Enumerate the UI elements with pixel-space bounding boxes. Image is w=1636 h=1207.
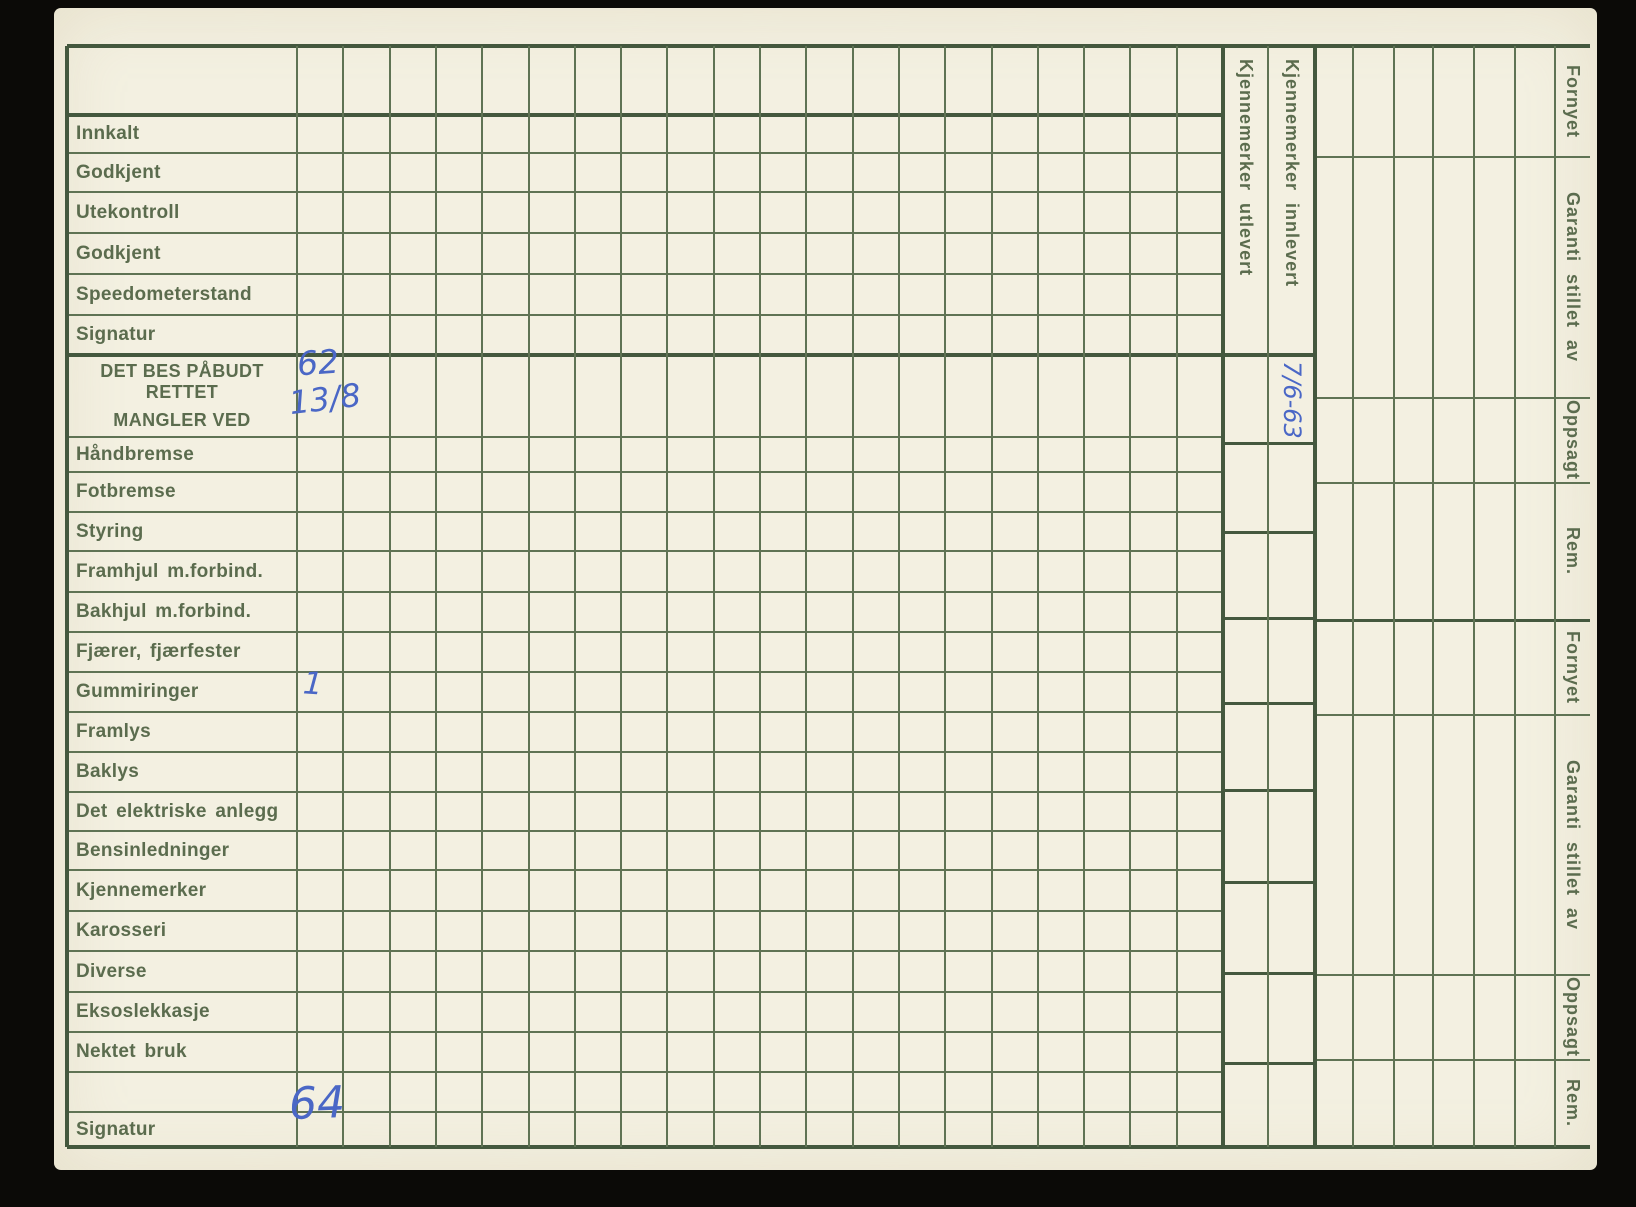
row-label: Bensinledninger — [76, 840, 229, 862]
row-label: Fjærer, fjærfester — [76, 641, 241, 663]
status-label: Rem. — [1557, 1060, 1588, 1147]
grid-line-h — [67, 631, 1223, 633]
grid-line-h — [67, 152, 1223, 154]
grid-line-h — [1223, 789, 1315, 792]
grid-line-v — [666, 46, 668, 1147]
grid-line-v — [898, 46, 900, 1147]
handwritten-entry: 64 — [288, 1081, 346, 1127]
row-label: Framhjul m.forbind. — [76, 561, 263, 583]
grid-line-v — [296, 46, 298, 1147]
grid-line-h — [67, 1031, 1223, 1033]
status-label: Oppsagt — [1557, 975, 1588, 1060]
handwritten-entry: 62 — [296, 345, 340, 381]
grid-line-v — [389, 46, 391, 1147]
grid-line-h — [1223, 702, 1315, 705]
status-label: Garanti stillet av — [1557, 715, 1588, 975]
status-label: Fornyet — [1557, 46, 1588, 157]
grid-line-v — [713, 46, 715, 1147]
grid-line-h — [67, 830, 1223, 832]
grid-line-v — [991, 46, 993, 1147]
grid-line-h — [67, 113, 1223, 117]
grid-line-h — [67, 591, 1223, 593]
grid-line-h — [1223, 1062, 1315, 1065]
handwritten-entry: 1 — [302, 668, 324, 700]
grid-line-v — [65, 46, 69, 1147]
grid-line-v — [1432, 46, 1434, 1147]
row-label: Signatur — [76, 324, 155, 346]
grid-line-v — [1176, 46, 1178, 1147]
grid-line-v — [1473, 46, 1475, 1147]
grid-line-h — [1223, 972, 1315, 975]
row-label: Framlys — [76, 721, 151, 743]
plate-column-header-innlevert: Kjennemerker innlevert — [1269, 46, 1315, 367]
grid-line-v — [342, 46, 344, 1147]
plate-column-header-utlevert: Kjennemerker utlevert — [1224, 46, 1268, 367]
grid-line-v — [620, 46, 622, 1147]
row-label: Eksoslekkasje — [76, 1001, 210, 1023]
grid-line-v — [1393, 46, 1395, 1147]
row-label: Håndbremse — [76, 444, 194, 466]
grid-line-h — [1315, 397, 1590, 399]
grid-line-h — [1223, 531, 1315, 534]
defect-section-header-line1: DET BES PÅBUDT RETTET — [67, 361, 297, 403]
grid-line-v — [528, 46, 530, 1147]
grid-line-h — [67, 191, 1223, 193]
grid-line-h — [67, 671, 1223, 673]
grid-line-h — [67, 273, 1223, 275]
grid-line-v — [1514, 46, 1516, 1147]
row-label: Godkjent — [76, 243, 161, 265]
row-label: Styring — [76, 521, 144, 543]
row-label: Nektet bruk — [76, 1041, 187, 1063]
row-label: Diverse — [76, 961, 147, 983]
grid-line-h — [1315, 974, 1590, 976]
grid-line-h — [67, 353, 1315, 357]
inspection-card — [54, 8, 1597, 1170]
grid-line-h — [67, 950, 1223, 952]
grid-line-h — [67, 314, 1223, 316]
grid-line-v — [574, 46, 576, 1147]
row-label: Karosseri — [76, 920, 166, 942]
grid-line-h — [67, 232, 1223, 234]
row-label: Godkjent — [76, 162, 161, 184]
grid-line-h — [1315, 714, 1590, 716]
status-label: Oppsagt — [1557, 398, 1588, 483]
grid-line-h — [1223, 881, 1315, 884]
defect-section-header-line2: MANGLER VED — [113, 410, 250, 431]
grid-line-v — [1129, 46, 1131, 1147]
grid-line-h — [67, 550, 1223, 552]
status-label: Fornyet — [1557, 620, 1588, 715]
grid-line-h — [67, 711, 1223, 713]
grid-line-v — [759, 46, 761, 1147]
row-label: Fotbremse — [76, 481, 176, 503]
grid-line-h — [1315, 482, 1590, 484]
grid-line-h — [67, 1071, 1223, 1073]
grid-line-h — [67, 471, 1223, 473]
row-label: Baklys — [76, 761, 139, 783]
grid-line-v — [944, 46, 946, 1147]
grid-line-h — [1315, 156, 1590, 158]
row-label: Kjennemerker — [76, 880, 206, 902]
grid-line-h — [67, 991, 1223, 993]
grid-line-h — [67, 436, 1223, 438]
grid-line-v — [852, 46, 854, 1147]
grid-line-h — [67, 751, 1223, 753]
grid-line-v — [1352, 46, 1354, 1147]
grid-line-h — [67, 511, 1223, 513]
grid-line-h — [1315, 1059, 1590, 1061]
grid-line-v — [805, 46, 807, 1147]
row-label: Bakhjul m.forbind. — [76, 601, 251, 623]
row-label: Innkalt — [76, 123, 139, 145]
row-label: Det elektriske anlegg — [76, 801, 278, 823]
grid-line-h — [67, 910, 1223, 912]
row-label: Signatur — [76, 1119, 155, 1141]
grid-line-v — [1083, 46, 1085, 1147]
row-label: Speedometerstand — [76, 284, 252, 306]
grid-line-h — [1223, 442, 1315, 445]
grid-line-v — [1037, 46, 1039, 1147]
handwritten-entry: 7/6-63 — [1269, 359, 1315, 441]
grid-line-v — [1554, 46, 1556, 1147]
grid-line-h — [1315, 619, 1590, 622]
grid-line-h — [67, 1111, 1223, 1113]
grid-line-h — [67, 869, 1223, 871]
row-label: Gummiringer — [76, 681, 199, 703]
grid-line-v — [481, 46, 483, 1147]
grid-line-h — [67, 791, 1223, 793]
scanned-photo-background: DET BES PÅBUDT RETTET MANGLER VED Innkal… — [0, 0, 1636, 1207]
status-label: Garanti stillet av — [1557, 157, 1588, 398]
handwritten-entry: 13/8 — [287, 379, 362, 420]
grid-line-h — [1223, 617, 1315, 620]
defect-section-header: DET BES PÅBUDT RETTET MANGLER VED — [67, 357, 297, 435]
row-label: Utekontroll — [76, 202, 180, 224]
status-label: Rem. — [1557, 483, 1588, 620]
grid-line-v — [435, 46, 437, 1147]
